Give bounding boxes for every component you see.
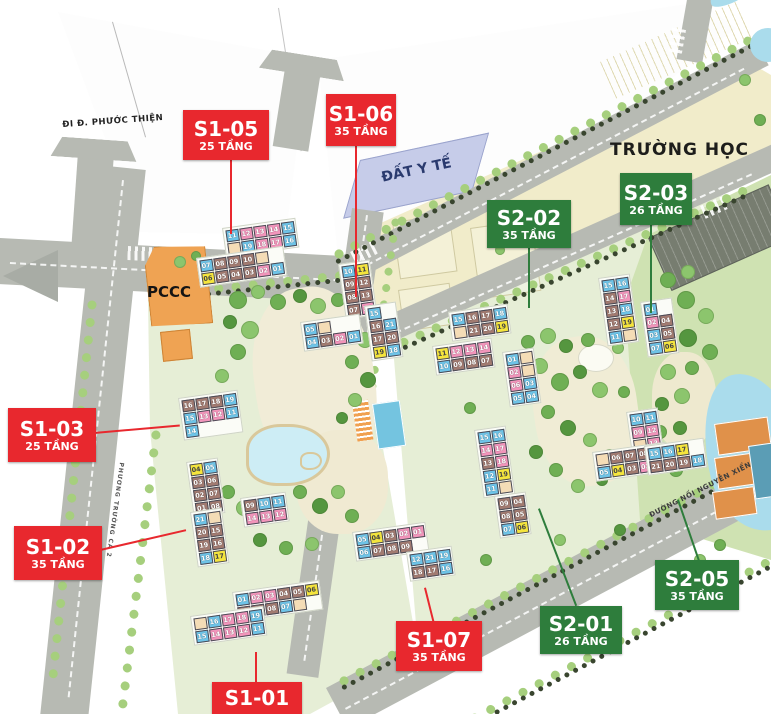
building-unit-cell — [622, 328, 637, 342]
building-unit-cell: 07 — [648, 341, 663, 355]
building-unit-cell: 04 — [511, 494, 526, 508]
tree — [614, 524, 626, 536]
building-unit-cell: 05 — [660, 326, 675, 340]
building-unit-cell: 10 — [240, 252, 255, 266]
tree — [345, 509, 359, 523]
building-unit-cell: 12 — [356, 275, 371, 289]
building-unit-cell: 21 — [193, 512, 208, 526]
building-unit-cell: 06 — [304, 583, 319, 597]
tree — [360, 372, 376, 388]
building-unit-cell: 19 — [372, 345, 387, 359]
building-unit-cell: 17 — [479, 308, 494, 322]
tree — [573, 365, 587, 379]
block-marker-s2-03[interactable]: S2-0326 TẦNG — [620, 173, 692, 225]
building-unit-cell: 13 — [463, 342, 478, 356]
building-unit-cell: 04 — [610, 463, 625, 477]
building-s2-01: 090408050706 — [494, 492, 532, 539]
building-unit-cell: 03 — [318, 333, 333, 347]
building-unit-cell: 20 — [195, 525, 210, 539]
tree — [592, 382, 608, 398]
tree — [540, 328, 556, 344]
building-unit-cell: 16 — [207, 614, 222, 628]
building-unit-cell — [498, 480, 513, 494]
building-unit-cell: 14 — [479, 443, 494, 457]
building-unit-cell: 16 — [661, 444, 676, 458]
tree — [554, 534, 566, 546]
building-unit-cell: 17 — [675, 442, 690, 456]
building-unit-cell: 12 — [449, 344, 464, 358]
tree — [251, 285, 265, 299]
tree — [541, 405, 555, 419]
building-unit-cell: 08 — [499, 509, 514, 523]
building-unit-cell: 12 — [239, 226, 254, 240]
tree — [754, 114, 766, 126]
building-unit-cell: 02 — [332, 331, 347, 345]
building-unit-cell: 12 — [644, 423, 659, 437]
tree — [310, 298, 326, 314]
building-unit-cell: 05 — [214, 269, 229, 283]
building-unit-cell: 04 — [228, 267, 243, 281]
building-unit-cell: 09 — [450, 357, 465, 371]
block-floors: 35 TẦNG — [326, 125, 396, 138]
building-unit-cell: 03 — [646, 328, 661, 342]
block-floors: 35 TẦNG — [14, 558, 102, 571]
block-code: S1-06 — [326, 103, 396, 125]
building-unit-cell: 15 — [183, 411, 198, 425]
school-label: TRƯỜNG HỌC — [610, 140, 749, 160]
tree — [529, 445, 543, 459]
building-unit-cell: 18 — [198, 551, 213, 565]
building-unit-cell: 17 — [370, 332, 385, 346]
building-unit-cell: 07 — [478, 353, 493, 367]
tree — [279, 541, 293, 555]
building-unit-cell: 19 — [437, 548, 452, 562]
building-unit-cell: 18 — [690, 453, 705, 467]
leader-line-s2-03 — [650, 223, 652, 313]
building-unit-cell: 02 — [645, 315, 660, 329]
tree — [618, 386, 630, 398]
building-unit-cell: 19 — [496, 467, 511, 481]
building-unit-cell: 08 — [464, 355, 479, 369]
building-unit-cell: 08 — [264, 601, 279, 615]
building-unit-cell: 11 — [435, 346, 450, 360]
tree — [677, 291, 695, 309]
block-marker-s1-02[interactable]: S1-0235 TẦNG — [14, 526, 102, 580]
building-unit-cell: 20 — [662, 457, 677, 471]
building-unit-cell: 14 — [476, 340, 491, 354]
building-unit-cell: 16 — [491, 428, 506, 442]
building-unit-cell — [207, 510, 222, 524]
block-floors: 25 TẦNG — [8, 440, 96, 453]
building-unit-cell: 09 — [243, 498, 258, 512]
building-unit-cell — [193, 616, 208, 630]
building-unit-cell: 13 — [604, 304, 619, 318]
block-floors: 26 TẦNG — [620, 204, 692, 217]
tree — [336, 412, 348, 424]
building-unit-cell: 01 — [505, 352, 520, 366]
tree — [312, 498, 328, 514]
building-unit-cell: 21 — [423, 550, 438, 564]
building-unit-cell — [292, 597, 307, 611]
block-marker-s1-03[interactable]: S1-0325 TẦNG — [8, 408, 96, 462]
building-unit-cell: 13 — [196, 409, 211, 423]
building-unit-cell: 02 — [507, 365, 522, 379]
building-unit-cell: 03 — [242, 265, 257, 279]
tree — [293, 289, 307, 303]
building-unit-cell: 11 — [250, 621, 265, 635]
tree — [348, 393, 362, 407]
tree — [702, 344, 718, 360]
site-plan-map: 1112131415191817160708091006050403020110… — [0, 0, 771, 714]
block-floors: 26 TẦNG — [540, 635, 622, 648]
building-unit-cell: 02 — [396, 526, 411, 540]
building-unit-cell: 06 — [204, 473, 219, 487]
building-unit-cell: 13 — [222, 625, 237, 639]
building-unit-cell: 18 — [411, 565, 426, 579]
building-unit-cell: 02 — [256, 263, 271, 277]
tree — [464, 402, 476, 414]
block-code: S1-02 — [14, 536, 102, 558]
building-unit-cell: 05 — [203, 460, 218, 474]
block-code: S1-05 — [183, 118, 269, 140]
block-code: S2-05 — [655, 568, 739, 590]
building-unit-cell — [519, 350, 534, 364]
building-unit-cell: 18 — [494, 454, 509, 468]
building-unit-cell: 17 — [492, 441, 507, 455]
building-unit-cell: 05 — [303, 322, 318, 336]
building-unit-cell: 19 — [248, 609, 263, 623]
building-unit-cell: 10 — [437, 359, 452, 373]
building-unit-cell: 10 — [257, 496, 272, 510]
building-unit-cell: 05 — [512, 507, 527, 521]
tree — [685, 361, 699, 375]
building-unit-cell: 12 — [409, 552, 424, 566]
building-unit-cell: 14 — [603, 291, 618, 305]
building-unit-cell: 15 — [280, 221, 295, 235]
building-unit-cell: 08 — [384, 541, 399, 555]
building-unit-cell: 21 — [382, 317, 397, 331]
building-unit-cell — [520, 363, 535, 377]
block-code: S1-01 — [212, 687, 302, 709]
building-unit-cell: 13 — [358, 288, 373, 302]
street-trees — [118, 430, 161, 709]
leader-line-s1-01 — [255, 652, 257, 684]
building-unit-cell: 04 — [369, 530, 384, 544]
building-unit-cell: 07 — [278, 599, 293, 613]
building-unit-cell: 06 — [609, 450, 624, 464]
building-unit-cell: 14 — [184, 424, 199, 438]
sports-court — [712, 486, 757, 520]
leader-line-s1-05 — [230, 158, 232, 234]
building-unit-cell: 17 — [195, 396, 210, 410]
building-unit-cell: 14 — [266, 222, 281, 236]
building-unit-cell: 11 — [271, 494, 286, 508]
building-unit-cell: 12 — [272, 507, 287, 521]
building-unit-cell: 20 — [384, 330, 399, 344]
building-unit-cell: 07 — [500, 522, 515, 536]
block-floors: 35 TẦNG — [655, 590, 739, 603]
building-unit-cell: 16 — [282, 233, 297, 247]
block-marker-s1-05[interactable]: S1-0525 TẦNG — [183, 110, 269, 160]
tree — [679, 329, 697, 347]
building-unit-cell: 01 — [346, 329, 361, 343]
building-unit-cell: 11 — [643, 410, 658, 424]
building-unit-cell — [453, 325, 468, 339]
tree — [229, 291, 247, 309]
tree — [660, 272, 676, 288]
building-unit-cell: 21 — [649, 459, 664, 473]
building-unit-cell: 17 — [424, 563, 439, 577]
building-unit-cell: 05 — [597, 465, 612, 479]
block-floors: 35 TẦNG — [396, 651, 482, 664]
building-unit-cell: 07 — [623, 448, 638, 462]
block-marker-s2-02[interactable]: S2-0235 TẦNG — [487, 200, 571, 248]
building-unit-cell: 19 — [196, 538, 211, 552]
building-unit-cell: 11 — [484, 482, 499, 496]
building-unit-cell: 10 — [629, 412, 644, 426]
tree — [270, 294, 286, 310]
building-unit-cell: 09 — [631, 425, 646, 439]
building-unit-cell: 14 — [208, 627, 223, 641]
tree — [714, 539, 726, 551]
tree — [215, 369, 229, 383]
building-unit-cell: 16 — [465, 310, 480, 324]
building-unit-cell: 06 — [508, 378, 523, 392]
tree — [681, 265, 695, 279]
leader-line-s1-06 — [355, 145, 357, 297]
tree — [559, 339, 573, 353]
building-unit-cell — [317, 320, 332, 334]
building-unit-cell: 04 — [276, 586, 291, 600]
building-unit-cell: 15 — [195, 629, 210, 643]
building-unit-cell: 06 — [201, 271, 216, 285]
building-unit-cell: 03 — [263, 588, 278, 602]
building-unit-cell: 19 — [222, 392, 237, 406]
building-unit-cell: 19 — [620, 315, 635, 329]
building-unit-cell: 15 — [601, 278, 616, 292]
building-unit-cell: 01 — [270, 261, 285, 275]
tree — [583, 433, 597, 447]
road-stub — [71, 152, 114, 249]
building-unit-cell: 17 — [212, 549, 227, 563]
tree — [253, 533, 267, 547]
block-marker-s1-01[interactable]: S1-01 — [212, 682, 302, 714]
building-s1-03: 161718191513121114 — [178, 390, 243, 441]
building-unit-cell: 12 — [210, 407, 225, 421]
building-unit-cell: 20 — [480, 321, 495, 335]
building-unit-cell: 19 — [676, 455, 691, 469]
building-unit-cell: 16 — [181, 398, 196, 412]
tree — [331, 485, 345, 499]
building-unit-cell: 21 — [466, 323, 481, 337]
building-unit-cell: 15 — [367, 306, 382, 320]
building-unit-cell: 04 — [658, 313, 673, 327]
tree — [293, 485, 307, 499]
building-unit-cell: 17 — [616, 289, 631, 303]
building-unit-cell: 07 — [206, 486, 221, 500]
tree — [230, 344, 246, 360]
block-floors: 25 TẦNG — [183, 140, 269, 153]
building-unit-cell: 18 — [618, 302, 633, 316]
building-unit-cell: 18 — [209, 394, 224, 408]
building-unit-cell: 06 — [662, 339, 677, 353]
building-unit-cell: 06 — [357, 545, 372, 559]
building-unit-cell: 12 — [236, 623, 251, 637]
building-unit-cell: 13 — [253, 224, 268, 238]
building-unit-cell: 13 — [258, 509, 273, 523]
building-unit-cell: 19 — [494, 319, 509, 333]
block-code: S1-07 — [396, 629, 482, 651]
building-unit-cell: 03 — [522, 376, 537, 390]
building-unit-cell: 05 — [290, 585, 305, 599]
building-unit-cell: 08 — [213, 256, 228, 270]
building-unit-cell: 18 — [492, 306, 507, 320]
building-unit-cell: 16 — [369, 319, 384, 333]
building-unit-cell: 12 — [606, 317, 621, 331]
building-unit-cell: 17 — [221, 612, 236, 626]
block-marker-s1-07[interactable]: S1-0735 TẦNG — [396, 621, 482, 671]
fire-station-annex — [160, 329, 193, 362]
building-unit-cell: 15 — [208, 523, 223, 537]
building-unit-cell: 06 — [514, 520, 529, 534]
tree — [660, 364, 676, 380]
building-unit-cell: 07 — [370, 543, 385, 557]
building-unit-cell: 07 — [199, 258, 214, 272]
block-marker-s2-01[interactable]: S2-0126 TẦNG — [540, 606, 622, 654]
tree — [345, 355, 359, 369]
block-code: S1-03 — [8, 418, 96, 440]
tree — [739, 74, 751, 86]
tree — [674, 388, 690, 404]
building-unit-cell: 03 — [624, 461, 639, 475]
building-unit-cell: 10 — [341, 264, 356, 278]
building-s1-07: 122119181716 — [406, 546, 456, 582]
building-unit-cell: 09 — [227, 254, 242, 268]
tree — [673, 421, 687, 435]
building-unit-cell — [254, 251, 269, 265]
tree — [571, 479, 585, 493]
fire-station-label: PCCC — [147, 283, 191, 301]
building-unit-cell: 15 — [451, 312, 466, 326]
building-unit-cell: 03 — [191, 475, 206, 489]
building-unit-cell: 11 — [224, 405, 239, 419]
tree — [549, 463, 563, 477]
building-unit-cell: 02 — [192, 488, 207, 502]
building-unit-cell: 11 — [225, 228, 240, 242]
tree — [480, 554, 492, 566]
building-unit-cell: 16 — [438, 561, 453, 575]
building-unit-cell: 11 — [608, 330, 623, 344]
tree — [581, 333, 595, 347]
building-unit-cell: 16 — [210, 536, 225, 550]
building-unit-cell: 03 — [383, 528, 398, 542]
tree — [560, 420, 576, 436]
tree — [241, 321, 259, 339]
building-unit-cell: 02 — [249, 590, 264, 604]
building-unit-cell — [595, 452, 610, 466]
block-marker-s1-06[interactable]: S1-0635 TẦNG — [326, 94, 396, 146]
building-unit-cell: 18 — [386, 343, 401, 357]
building-unit-cell: 05 — [510, 391, 525, 405]
block-code: S2-02 — [487, 207, 571, 229]
building-unit-cell: 16 — [615, 276, 630, 290]
tree — [305, 537, 319, 551]
building-unit-cell: 13 — [480, 456, 495, 470]
building-unit-cell: 14 — [245, 511, 260, 525]
leader-line-s2-02 — [528, 246, 530, 308]
tree — [174, 256, 186, 268]
building-unit-cell: 12 — [482, 469, 497, 483]
building-unit-cell: 04 — [305, 335, 320, 349]
building-unit-cell: 01 — [235, 592, 250, 606]
tree — [698, 308, 714, 324]
building-unit-cell: 04 — [189, 462, 204, 476]
building-unit-cell: 04 — [524, 389, 539, 403]
building-unit-cell: 15 — [647, 446, 662, 460]
building-unit-cell: 01 — [410, 525, 425, 539]
block-code: S2-01 — [540, 613, 622, 635]
building-unit-cell: 15 — [477, 430, 492, 444]
tree — [223, 315, 237, 329]
block-marker-s2-05[interactable]: S2-0535 TẦNG — [655, 560, 739, 610]
building-unit-cell: 05 — [355, 532, 370, 546]
building-unit-cell: 09 — [497, 496, 512, 510]
building-unit-cell: 18 — [234, 610, 249, 624]
block-code: S2-03 — [620, 182, 692, 204]
block-floors: 35 TẦNG — [487, 229, 571, 242]
tree — [551, 373, 569, 391]
building-s1-02: 091011141312 — [240, 492, 290, 528]
